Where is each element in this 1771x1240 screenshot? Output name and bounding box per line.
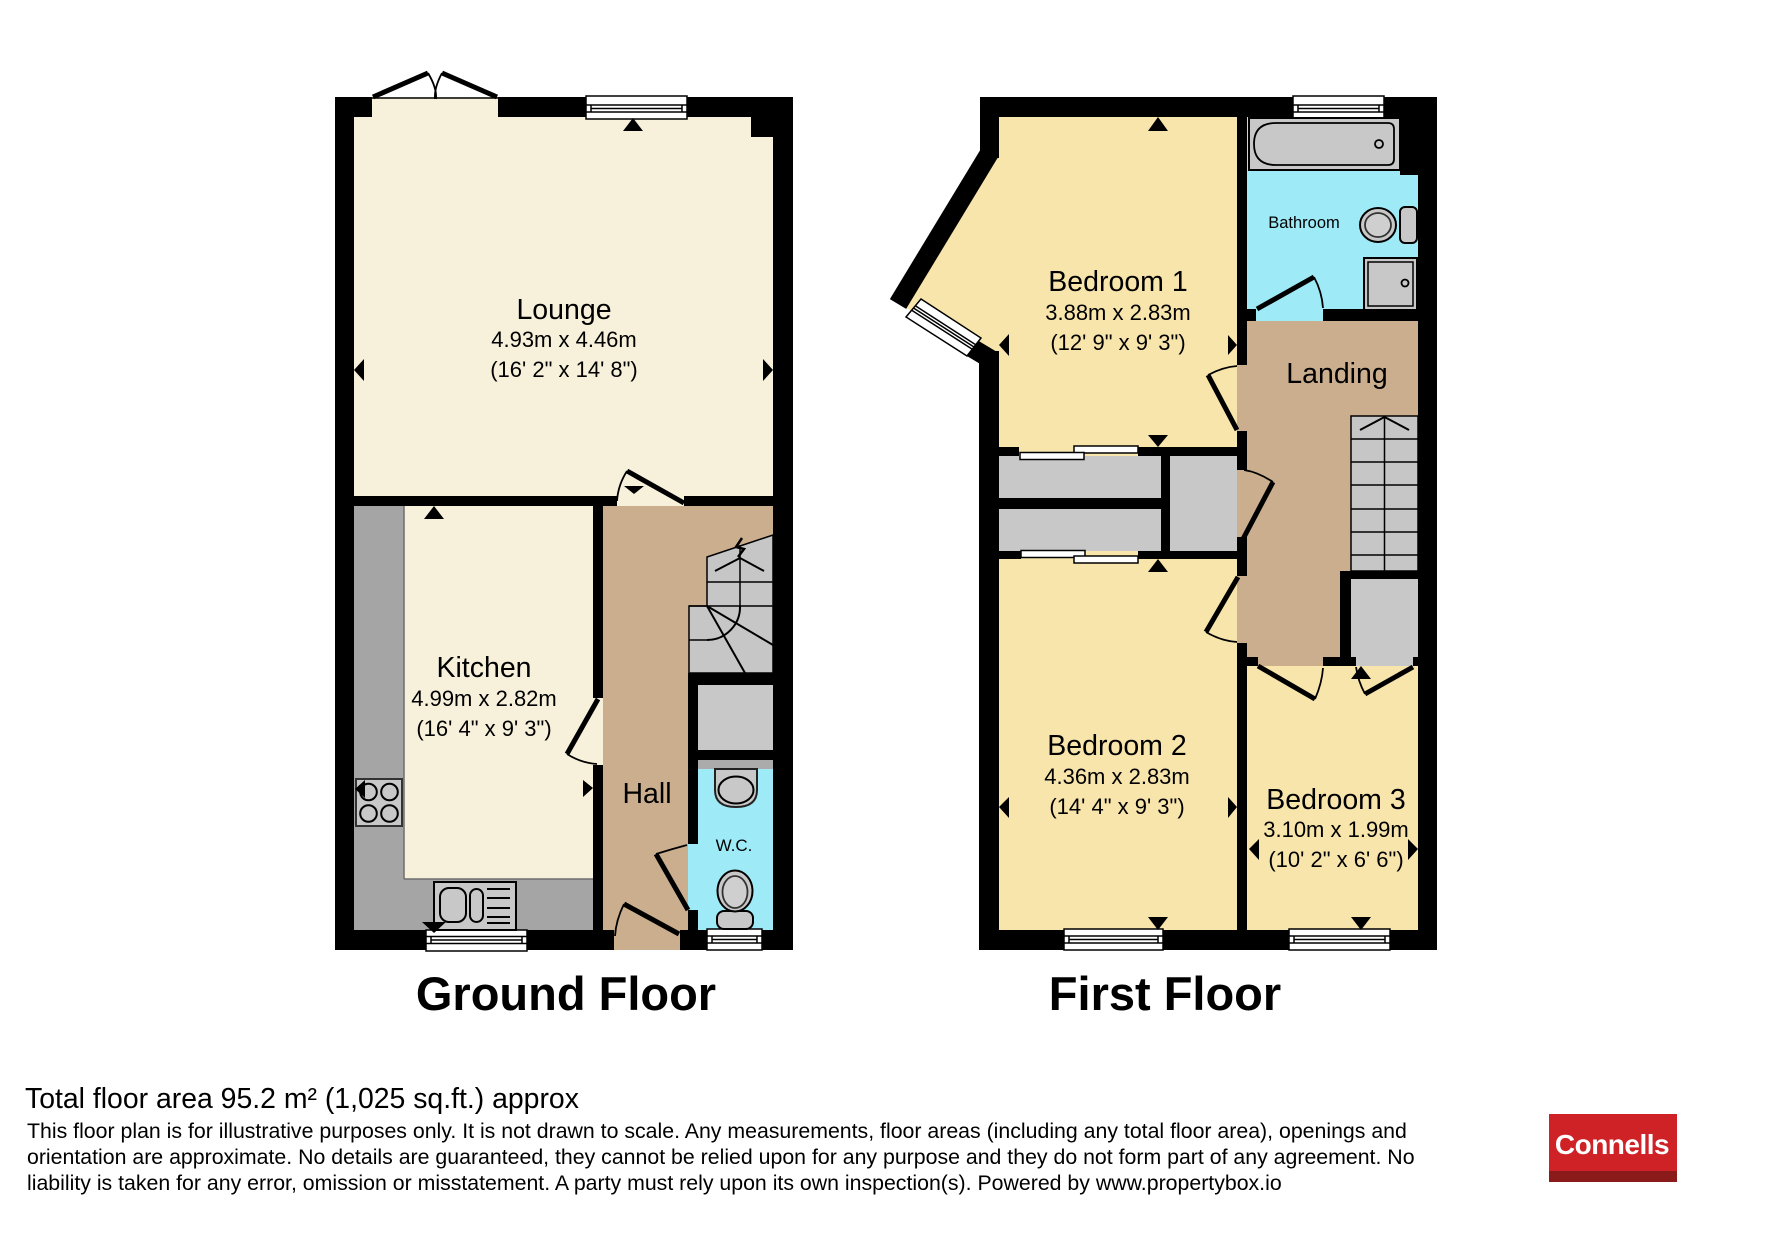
svg-text:Ground Floor: Ground Floor [416, 967, 716, 1020]
svg-text:Kitchen: Kitchen [436, 652, 531, 684]
svg-text:Lounge: Lounge [516, 294, 611, 326]
svg-text:Connells: Connells [1555, 1129, 1669, 1160]
svg-text:4.36m x 2.83m: 4.36m x 2.83m [1044, 764, 1190, 789]
svg-text:(12' 9" x 9' 3"): (12' 9" x 9' 3") [1050, 330, 1185, 355]
svg-text:Bedroom 2: Bedroom 2 [1047, 730, 1186, 762]
svg-text:First Floor: First Floor [1049, 967, 1281, 1020]
svg-text:3.10m x 1.99m: 3.10m x 1.99m [1263, 817, 1409, 842]
svg-text:Hall: Hall [622, 778, 671, 810]
svg-text:Bedroom 3: Bedroom 3 [1266, 784, 1405, 816]
svg-text:4.93m x 4.46m: 4.93m x 4.46m [491, 327, 637, 352]
svg-text:orientation are approximate. N: orientation are approximate. No details … [27, 1145, 1415, 1169]
svg-text:W.C.: W.C. [716, 836, 753, 855]
svg-text:(14' 4" x 9' 3"): (14' 4" x 9' 3") [1049, 794, 1184, 819]
svg-text:Total floor area 95.2 m² (1,02: Total floor area 95.2 m² (1,025 sq.ft.) … [25, 1083, 579, 1115]
svg-text:liability is taken for any err: liability is taken for any error, omissi… [27, 1171, 1282, 1195]
svg-text:This floor plan is for illustr: This floor plan is for illustrative purp… [27, 1119, 1407, 1143]
svg-text:3.88m x 2.83m: 3.88m x 2.83m [1045, 300, 1191, 325]
svg-text:Bedroom 1: Bedroom 1 [1048, 266, 1187, 298]
svg-text:(16' 2" x 14' 8"): (16' 2" x 14' 8") [490, 357, 638, 382]
svg-text:(16' 4" x 9' 3"): (16' 4" x 9' 3") [416, 716, 551, 741]
svg-text:Bathroom: Bathroom [1268, 214, 1340, 232]
svg-text:Landing: Landing [1286, 358, 1387, 390]
svg-text:(10' 2" x 6' 6"): (10' 2" x 6' 6") [1268, 847, 1403, 872]
svg-text:4.99m x 2.82m: 4.99m x 2.82m [411, 686, 557, 711]
